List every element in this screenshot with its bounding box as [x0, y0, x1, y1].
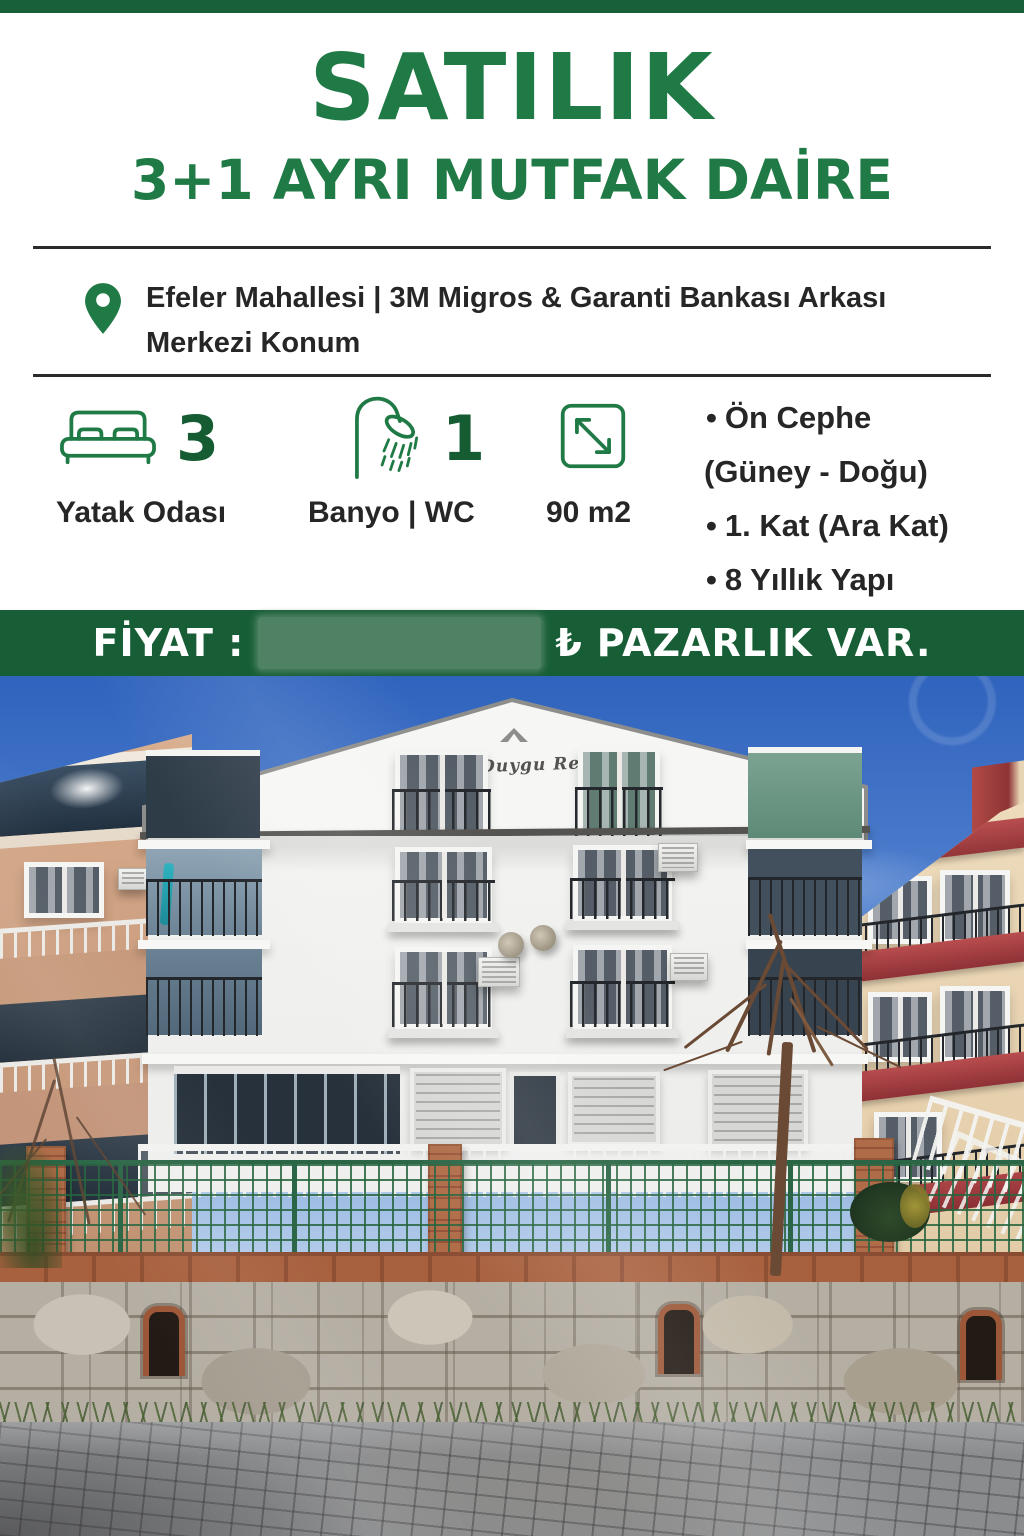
shrub: [0, 1146, 62, 1268]
balcony: [146, 750, 260, 838]
price-note: PAZARLIK VAR.: [597, 621, 932, 665]
balcony: [146, 849, 262, 935]
window: [24, 862, 104, 918]
bathroom-count: 1: [442, 402, 485, 475]
poster-subtitle: 3+1 AYRI MUTFAK DAİRE: [0, 148, 1024, 212]
balcony-rail: [146, 977, 262, 1036]
photo-pavement: [0, 1422, 1024, 1536]
divider-top: [33, 246, 991, 249]
window: [395, 847, 492, 923]
bullet: •: [706, 562, 717, 597]
details-list: •Ön Cephe (Güney - Doğu) •1. Kat (Ara Ka…: [706, 396, 1016, 612]
price-label: FİYAT :: [93, 621, 245, 665]
bullet: •: [706, 508, 717, 543]
glass-door: [510, 1072, 560, 1150]
bedroom-count: 3: [176, 402, 219, 475]
wall-niche: [658, 1304, 700, 1374]
wall-niche: [143, 1306, 185, 1376]
window: [395, 750, 488, 840]
sun-reflection: [50, 766, 124, 811]
vent-cap: [530, 925, 556, 951]
window: [573, 945, 672, 1029]
area-icon: [558, 401, 628, 475]
poster-title: SATILIK: [0, 34, 1024, 141]
listing-poster: SATILIK 3+1 AYRI MUTFAK DAİRE Efeler Mah…: [0, 0, 1024, 1536]
balcony: [146, 949, 262, 1035]
roller-shutter: [568, 1072, 660, 1146]
balcony: [748, 747, 862, 838]
balcony-rail: [146, 879, 262, 936]
detail-item: •Ön Cephe: [706, 396, 1016, 441]
feature-bedrooms: 3 Yatak Odası: [56, 390, 308, 530]
area-label: 90 m2: [546, 496, 704, 530]
detail-item: •8 Yıllık Yapı: [706, 558, 1016, 603]
bathroom-label: Banyo | WC: [308, 496, 546, 530]
balcony-slab: [138, 940, 270, 949]
location-line2: Merkezi Konum: [146, 321, 886, 366]
ac-unit: [658, 843, 698, 872]
feature-bathroom: 1 Banyo | WC: [308, 390, 546, 530]
bullet: •: [706, 400, 717, 435]
shower-icon: [342, 390, 426, 486]
wall-niche: [960, 1310, 1002, 1380]
ac-unit: [478, 957, 520, 987]
ac-unit: [118, 868, 148, 890]
location-line1: Efeler Mahallesi | 3M Migros & Garanti B…: [146, 276, 886, 321]
detail-item: (Güney - Doğu): [704, 450, 1016, 495]
features-row: 3 Yatak Odası 1 Banyo | WC: [56, 390, 704, 530]
currency-symbol: ₺: [555, 621, 582, 665]
location-text: Efeler Mahallesi | 3M Migros & Garanti B…: [146, 276, 886, 366]
balcony-slab: [138, 840, 270, 849]
feature-area: 90 m2: [546, 390, 704, 530]
shrub: [900, 1184, 930, 1228]
roller-shutter: [410, 1068, 506, 1148]
glass-enclosure: [174, 1066, 400, 1154]
window: [578, 747, 660, 840]
bedroom-label: Yatak Odası: [56, 496, 308, 530]
bed-icon: [56, 405, 160, 471]
price-blurred-value: [258, 617, 541, 669]
map-pin-icon: [84, 282, 122, 339]
price-band: FİYAT : ₺ PAZARLIK VAR.: [0, 610, 1024, 676]
balcony-slab: [746, 840, 872, 849]
location-section: Efeler Mahallesi | 3M Migros & Garanti B…: [84, 276, 994, 366]
top-green-bar: [0, 0, 1024, 13]
detail-item: •1. Kat (Ara Kat): [706, 504, 1016, 549]
divider-bottom: [33, 374, 991, 377]
vent-cap: [498, 932, 524, 958]
building-photo: Duygu Residence: [0, 676, 1024, 1536]
